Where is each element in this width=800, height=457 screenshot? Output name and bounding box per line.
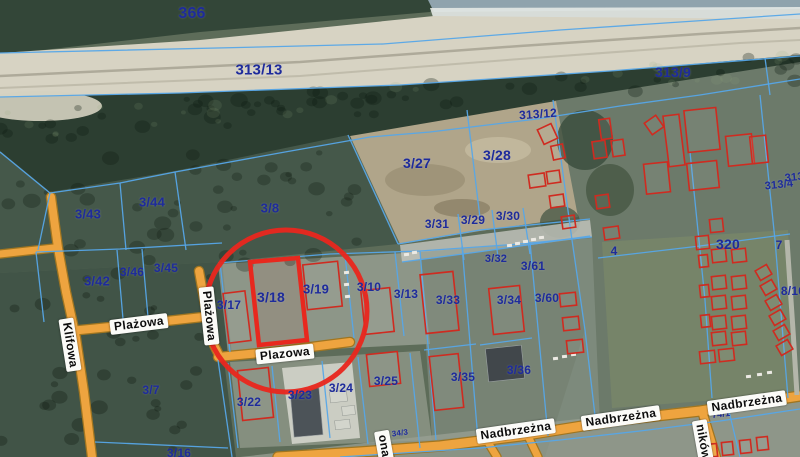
building-dark bbox=[485, 345, 524, 382]
building-outline bbox=[711, 331, 726, 345]
building-outline bbox=[559, 292, 576, 307]
building-outline bbox=[711, 315, 726, 329]
building-outline bbox=[711, 275, 726, 289]
building-outline bbox=[366, 351, 400, 386]
building-outline bbox=[561, 215, 576, 229]
building-outline bbox=[429, 354, 463, 411]
building-outline bbox=[684, 107, 720, 152]
building-outline bbox=[718, 348, 734, 362]
building-outline bbox=[237, 368, 273, 421]
building-outline bbox=[750, 135, 769, 164]
building-outline bbox=[562, 316, 579, 331]
building-outline bbox=[528, 173, 546, 188]
building-outline bbox=[699, 350, 715, 364]
building-outline bbox=[420, 271, 459, 333]
building-outline bbox=[695, 235, 709, 249]
building-outline bbox=[709, 218, 723, 232]
building-outline bbox=[731, 248, 746, 262]
building-outline bbox=[698, 255, 708, 268]
building-outline bbox=[595, 194, 610, 209]
building-dark bbox=[290, 388, 323, 437]
map-canvas[interactable]: 366313/13313/9313/123/273/283/313/293/30… bbox=[0, 0, 800, 457]
building-outline bbox=[566, 339, 583, 354]
building-outline bbox=[731, 331, 746, 345]
aerial-map-svg bbox=[0, 0, 800, 457]
building-outline bbox=[700, 315, 710, 328]
building-outline bbox=[687, 161, 720, 191]
building-outline bbox=[705, 443, 717, 457]
building-outline bbox=[711, 295, 726, 309]
building-outline bbox=[739, 439, 751, 453]
selected-parcel-3-18[interactable] bbox=[250, 258, 307, 345]
building-outline bbox=[603, 226, 620, 240]
building-outline bbox=[599, 118, 613, 139]
building-outline bbox=[489, 286, 525, 335]
building-outline bbox=[592, 140, 607, 159]
building-outline bbox=[303, 261, 343, 309]
building-outline bbox=[611, 139, 625, 157]
building-outline bbox=[549, 194, 565, 208]
building-outline bbox=[551, 144, 566, 160]
building-outline bbox=[546, 170, 561, 184]
building-outline bbox=[731, 275, 746, 289]
building-outline bbox=[731, 315, 746, 329]
building-outline bbox=[643, 162, 670, 194]
building-outline bbox=[731, 295, 746, 309]
building-outline bbox=[699, 285, 709, 298]
building-outline bbox=[756, 436, 768, 450]
building-outline bbox=[721, 441, 733, 455]
building-outline bbox=[711, 248, 726, 262]
